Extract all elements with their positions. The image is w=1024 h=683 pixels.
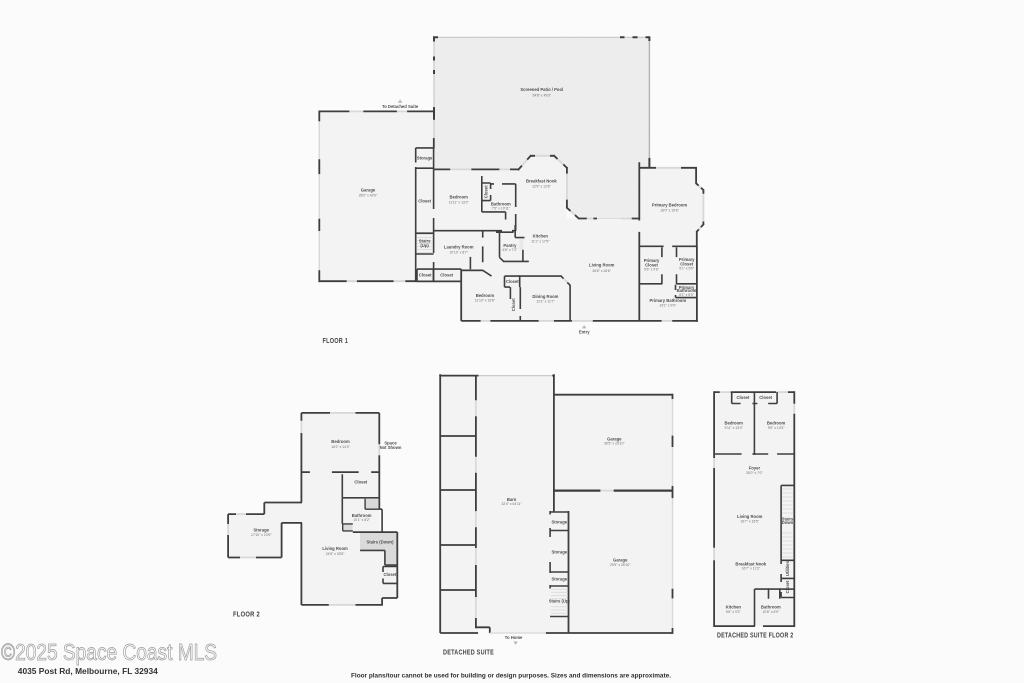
svg-text:Stairs (Down): Stairs (Down) xyxy=(367,540,395,545)
svg-text:Utilities: Utilities xyxy=(785,560,790,576)
svg-text:Primary Bedroom: Primary Bedroom xyxy=(652,202,687,207)
svg-text:4035 Post Rd, Melbourne, FL 32: 4035 Post Rd, Melbourne, FL 32934 xyxy=(18,667,159,676)
svg-text:Closet: Closet xyxy=(418,199,431,204)
svg-text:6'6" x 7'2": 6'6" x 7'2" xyxy=(502,248,518,252)
svg-text:Bedroom: Bedroom xyxy=(331,439,350,444)
svg-text:24'8" x 33'5": 24'8" x 33'5" xyxy=(326,552,345,556)
svg-text:32'4" x 64'11": 32'4" x 64'11" xyxy=(501,502,522,506)
svg-text:Garage: Garage xyxy=(607,436,622,441)
svg-text:28'2" x 42'0": 28'2" x 42'0" xyxy=(359,194,378,198)
svg-text:Kitchen: Kitchen xyxy=(533,234,549,239)
svg-text:Dining Room: Dining Room xyxy=(532,294,558,299)
svg-text:Breakfast Nook: Breakfast Nook xyxy=(526,178,557,183)
svg-text:Storage: Storage xyxy=(253,527,269,532)
svg-text:FLOOR 1: FLOOR 1 xyxy=(323,338,349,345)
svg-text:5'1" x 5'0": 5'1" x 5'0" xyxy=(679,267,695,271)
svg-text:Bedroom: Bedroom xyxy=(476,293,495,298)
svg-text:To Detached Suite: To Detached Suite xyxy=(382,104,419,109)
svg-text:30'0" x 7'0": 30'0" x 7'0" xyxy=(746,471,764,475)
svg-text:54'8" x 49'3": 54'8" x 49'3" xyxy=(532,93,551,97)
svg-text:26'6" x 26'6": 26'6" x 26'6" xyxy=(592,269,611,273)
svg-text:Primary Bathroom: Primary Bathroom xyxy=(650,298,687,303)
svg-text:16'7" x 11'3": 16'7" x 11'3" xyxy=(742,567,761,571)
svg-text:Stairs (Up): Stairs (Up) xyxy=(549,599,571,604)
svg-text:Living Room: Living Room xyxy=(589,263,615,268)
svg-text:10'6" x 6'9": 10'6" x 6'9" xyxy=(762,610,780,614)
svg-text:Closet: Closet xyxy=(383,572,396,577)
svg-text:(Down): (Down) xyxy=(780,520,795,525)
svg-text:Laundry Room: Laundry Room xyxy=(444,245,474,250)
svg-text:(Up): (Up) xyxy=(420,243,429,248)
svg-text:DETACHED SUITE FLOOR 2: DETACHED SUITE FLOOR 2 xyxy=(717,632,794,639)
svg-text:16'7" x 16'5": 16'7" x 16'5" xyxy=(740,519,759,523)
svg-text:10'10" x 8'7": 10'10" x 8'7" xyxy=(449,250,468,254)
svg-text:Storage: Storage xyxy=(417,155,433,160)
svg-text:12'1" x 11'7": 12'1" x 11'7" xyxy=(536,300,555,304)
svg-text:DETACHED SUITE: DETACHED SUITE xyxy=(443,650,494,657)
svg-text:Storage: Storage xyxy=(552,577,568,582)
svg-text:Screened Patio / Pool: Screened Patio / Pool xyxy=(520,87,563,92)
svg-text:5'6" x 9'6": 5'6" x 9'6" xyxy=(644,268,660,272)
svg-text:11'1" x 17'9": 11'1" x 17'9" xyxy=(531,239,550,243)
svg-text:Entry: Entry xyxy=(579,330,590,335)
svg-text:9'11" x 13'4": 9'11" x 13'4" xyxy=(725,426,744,430)
svg-text:Bathroom: Bathroom xyxy=(761,605,781,610)
svg-text:39'5" x 23'10": 39'5" x 23'10" xyxy=(604,442,625,446)
svg-text:Barn: Barn xyxy=(507,497,517,502)
svg-text:Closet: Closet xyxy=(506,279,519,284)
svg-text:Not Shown: Not Shown xyxy=(380,445,402,450)
svg-text:11'11" x 13'2": 11'11" x 13'2" xyxy=(449,201,470,205)
svg-text:16'1" x 9'0": 16'1" x 9'0" xyxy=(659,303,677,307)
svg-text:FLOOR 2: FLOOR 2 xyxy=(233,612,260,619)
svg-text:17'10" x 13'9": 17'10" x 13'9" xyxy=(251,533,272,537)
svg-text:16'2" x 14'4": 16'2" x 14'4" xyxy=(331,445,350,449)
svg-text:29'9" x 26'10": 29'9" x 26'10" xyxy=(610,563,631,567)
svg-text:11'10" x 16'8": 11'10" x 16'8" xyxy=(475,298,496,302)
svg-text:To Home: To Home xyxy=(505,635,523,640)
svg-text:Floor plans/tour cannot be use: Floor plans/tour cannot be used for buil… xyxy=(351,672,671,679)
svg-text:9'9" x 13'3": 9'9" x 13'3" xyxy=(768,426,786,430)
svg-text:Foyer: Foyer xyxy=(749,466,761,471)
svg-text:Closet: Closet xyxy=(354,480,367,485)
svg-text:Bedroom: Bedroom xyxy=(450,195,469,200)
svg-text:Kitchen: Kitchen xyxy=(726,605,742,610)
svg-text:Storage: Storage xyxy=(552,550,568,555)
svg-text:10'1" x 8'2": 10'1" x 8'2" xyxy=(353,518,371,522)
svg-text:Garage: Garage xyxy=(613,557,628,562)
svg-text:Living Room: Living Room xyxy=(737,514,763,519)
svg-text:Closet: Closet xyxy=(440,273,453,278)
svg-text:7'5" x 10'11": 7'5" x 10'11" xyxy=(492,207,511,211)
svg-text:Closet: Closet xyxy=(511,298,516,311)
svg-text:Living Room: Living Room xyxy=(322,546,348,551)
svg-text:Closet: Closet xyxy=(736,395,749,400)
svg-text:Garage: Garage xyxy=(361,188,376,193)
svg-text:12'9" x 12'8": 12'9" x 12'8" xyxy=(532,184,551,188)
svg-text:©2025 Space Coast MLS: ©2025 Space Coast MLS xyxy=(1,639,217,665)
svg-text:Breakfast Nook: Breakfast Nook xyxy=(735,561,766,566)
svg-text:Bedroom: Bedroom xyxy=(767,421,786,426)
svg-text:Closet: Closet xyxy=(419,273,432,278)
svg-text:Closet: Closet xyxy=(785,580,790,593)
svg-text:Closet: Closet xyxy=(759,395,772,400)
svg-text:9'6" x 9'2": 9'6" x 9'2" xyxy=(726,610,742,614)
svg-text:Bedroom: Bedroom xyxy=(725,421,744,426)
svg-text:Closet: Closet xyxy=(484,185,489,198)
svg-text:Storage: Storage xyxy=(552,519,568,524)
svg-text:8'1" x 5'0": 8'1" x 5'0" xyxy=(679,293,695,297)
svg-text:16'0" x 15'6": 16'0" x 15'6" xyxy=(660,208,679,212)
